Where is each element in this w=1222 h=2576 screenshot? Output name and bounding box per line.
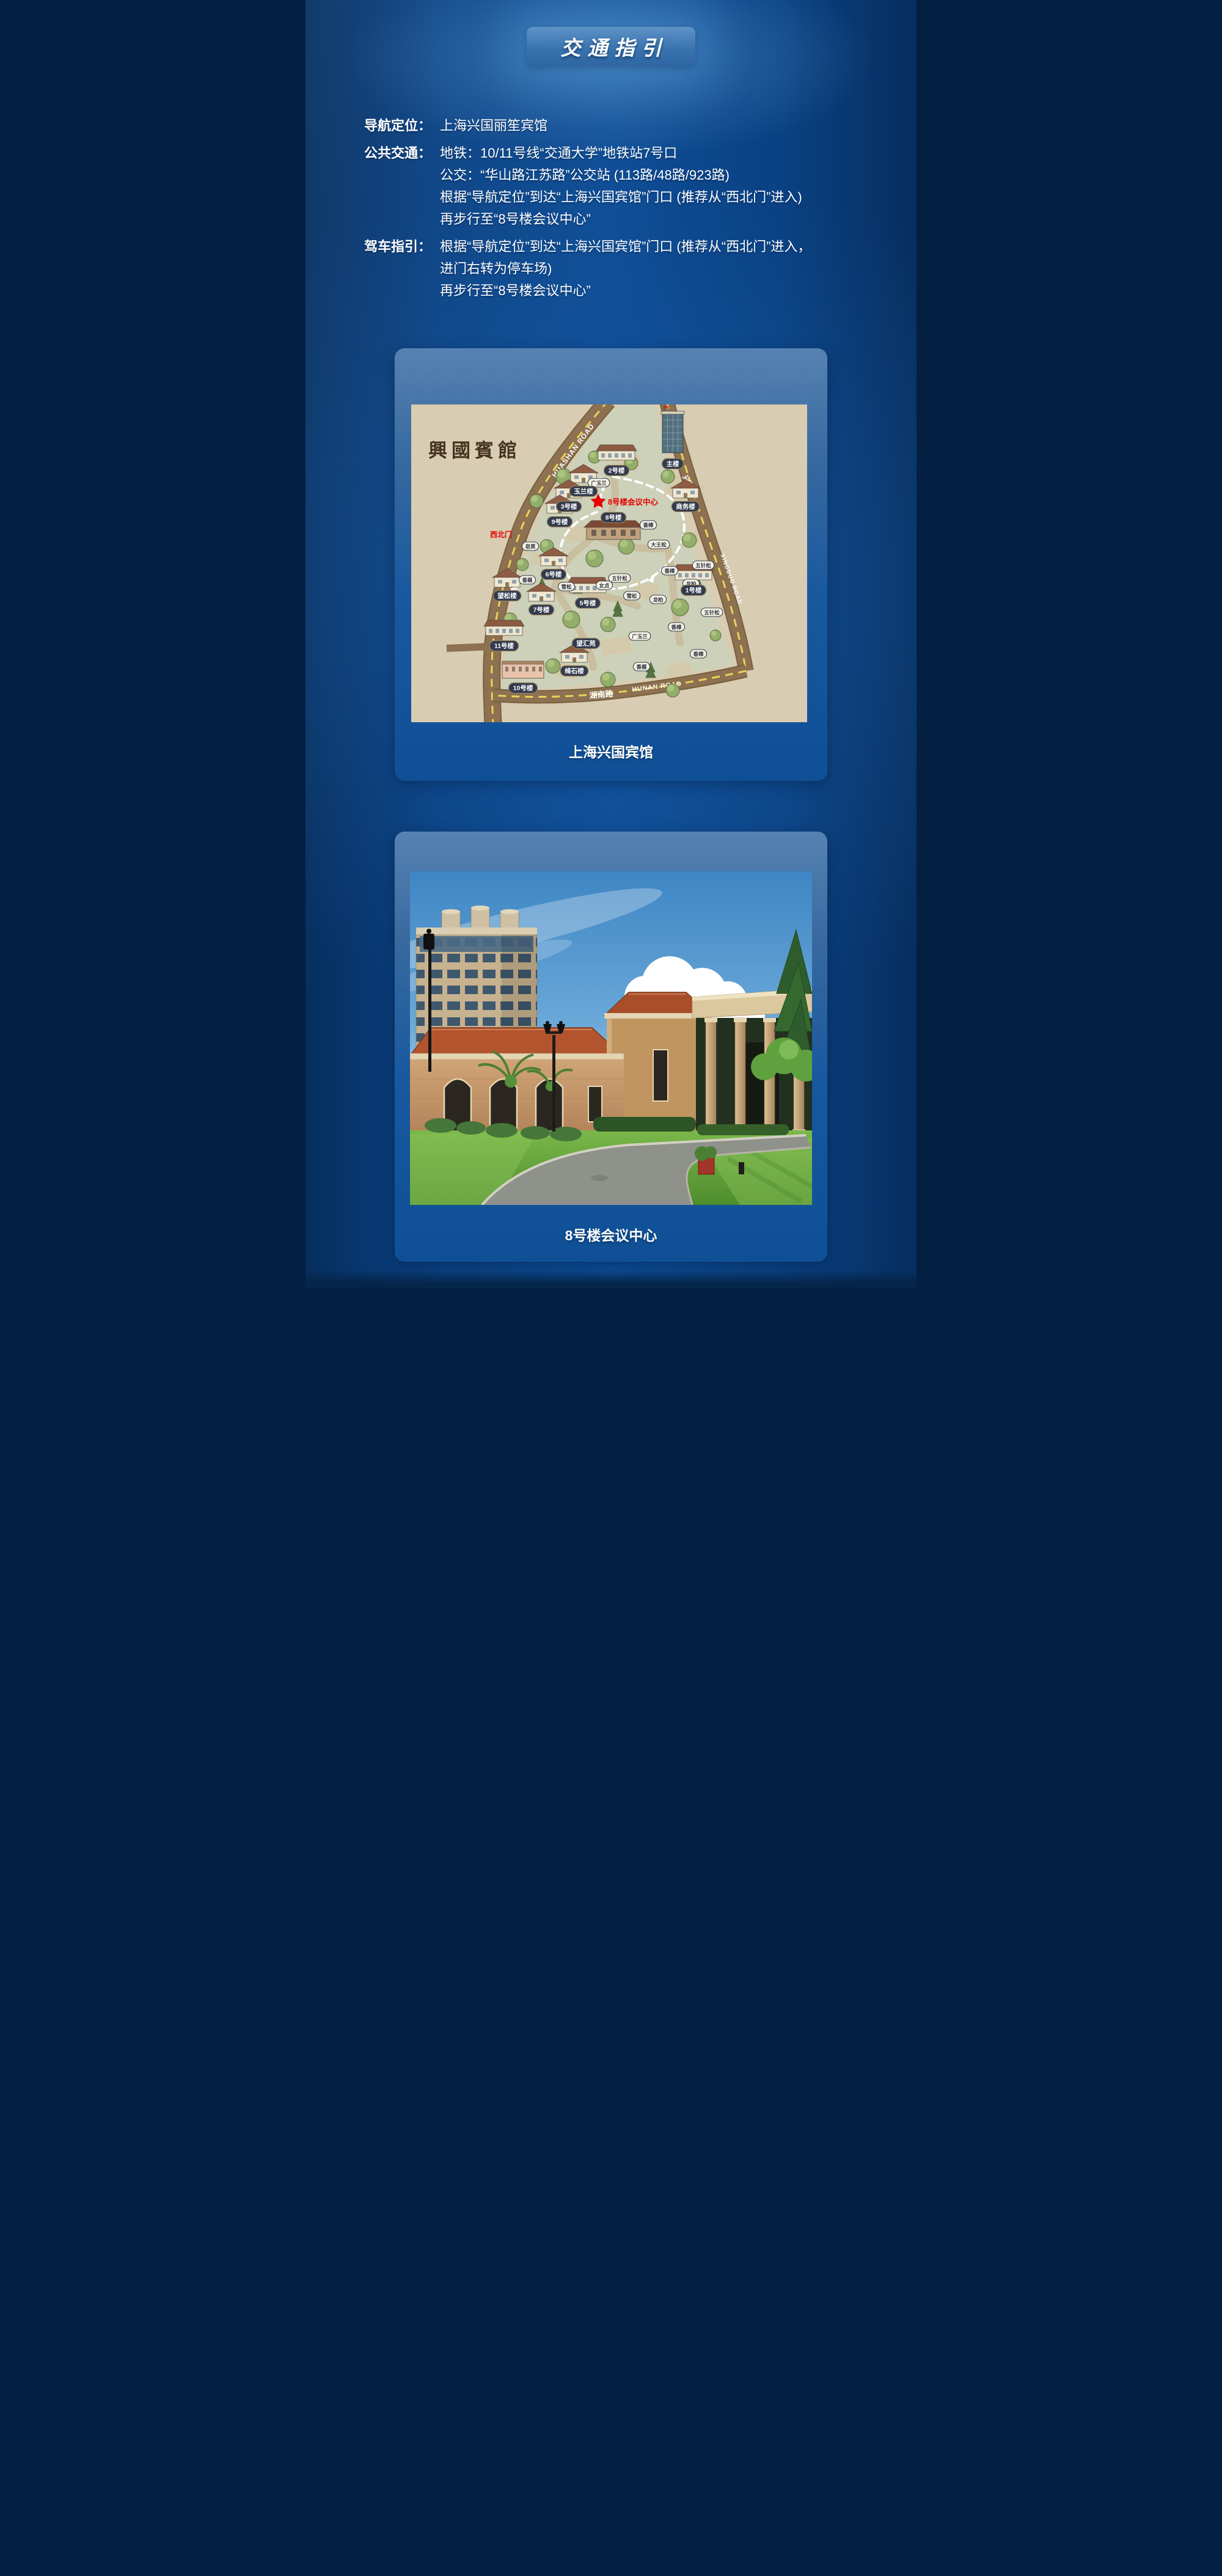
map-tree-label: 香樟 [690,649,707,658]
svg-text:5号楼: 5号楼 [580,599,596,607]
conference-highlight-label: 8号楼会议中心 [608,497,658,507]
info-row-label: 驾车指引： [364,236,440,302]
svg-text:商务楼: 商务楼 [676,503,695,511]
map-building-label: 7号楼 [529,605,554,615]
map-title-calligraphy: 興國賓館 [428,440,521,462]
svg-text:香樟: 香樟 [670,624,682,631]
svg-text:五针松: 五针松 [612,576,627,582]
map-tree-label: 香榧 [634,662,650,671]
svg-text:广玉兰: 广玉兰 [632,634,648,640]
svg-text:皂荚: 皂荚 [525,544,536,550]
hotel-map-illustration: HUASHAN ROAD 华山路 兴国路 XINGGUO ROAD 湖南路 HU… [411,404,807,722]
map-building-label: 望松楼 [493,591,521,601]
map-caption: 上海兴国宾馆 [395,741,827,761]
map-building-label: 10号楼 [508,683,537,693]
page-title-banner: 交通指引 [527,27,695,66]
road-side-stub [447,646,494,648]
traffic-guide-page: 交通指引 导航定位：上海兴国丽笙宾馆公共交通：地铁：10/11号线“交通大学”地… [305,0,916,1288]
info-row-label: 公共交通： [364,142,440,230]
svg-text:女贞: 女贞 [599,583,610,589]
info-line: 地铁：10/11号线“交通大学”地铁站7号口 [440,142,896,164]
map-building-label: 5号楼 [575,598,600,609]
map-tree-label: 皂荚 [522,542,539,551]
footer-strip [305,1270,916,1288]
info-line: 根据“导航定位”到达“上海兴国宾馆”门口 (推荐从“西北门”进入， [440,236,896,258]
svg-text:7号楼: 7号楼 [533,606,550,614]
svg-text:香樟: 香樟 [692,651,704,657]
map-tree-label: 广玉兰 [629,632,651,640]
map-tree-label: 女贞 [596,581,613,590]
svg-text:广玉兰: 广玉兰 [591,480,607,486]
svg-text:望汇苑: 望汇苑 [576,640,596,648]
svg-text:雪松: 雪松 [626,593,637,599]
conference-photo [410,871,812,1205]
svg-text:9号楼: 9号楼 [552,518,568,526]
info-row-label: 导航定位： [364,115,440,137]
info-row-lines: 上海兴国丽笙宾馆 [440,115,896,137]
map-building-label: 绮石楼 [560,666,588,676]
info-row: 导航定位：上海兴国丽笙宾馆 [364,115,896,137]
svg-text:望松楼: 望松楼 [497,592,517,600]
map-building-glyph [596,445,637,460]
info-line: 公交：“华山路江苏路”公交站 (113路/48路/923路) [440,164,896,186]
svg-text:1号楼: 1号楼 [686,587,702,595]
map-tree-label: 雪松 [624,591,640,600]
svg-text:11号楼: 11号楼 [494,642,514,650]
hotel-map-card: HUASHAN ROAD 华山路 兴国路 XINGGUO ROAD 湖南路 HU… [395,348,827,781]
hotel-map-image: HUASHAN ROAD 华山路 兴国路 XINGGUO ROAD 湖南路 HU… [411,404,807,722]
info-line: 进门右转为停车场) [440,258,896,280]
map-building-label: 主楼 [662,459,684,469]
photo-caption: 8号楼会议中心 [395,1224,827,1245]
svg-text:香榧: 香榧 [635,664,647,670]
svg-text:2号楼: 2号楼 [609,467,625,475]
svg-text:6号楼: 6号楼 [546,571,562,579]
bollard [739,1162,744,1174]
info-line: 再步行至“8号楼会议中心” [440,208,896,230]
map-building-label: 玉兰楼 [569,486,598,497]
map-tree-label: 五针松 [701,608,723,617]
page-title: 交通指引 [554,32,668,61]
map-building-glyph [502,661,544,678]
map-building-glyph [584,521,643,540]
map-building-label: 商务楼 [671,502,700,512]
info-line: 上海兴国丽笙宾馆 [440,115,896,137]
map-tree-label: 香榧 [519,576,536,584]
svg-text:香榧: 香榧 [521,577,533,584]
svg-text:10号楼: 10号楼 [513,684,533,692]
svg-text:五针松: 五针松 [704,610,720,616]
info-line: 再步行至“8号楼会议中心” [440,280,896,302]
map-building-label: 2号楼 [604,466,629,476]
svg-text:五针松: 五针松 [695,563,711,569]
map-tree-label: 五针松 [692,561,714,569]
map-tree-label: 龙柏 [650,595,667,604]
svg-text:香樟: 香樟 [664,568,675,574]
info-row: 公共交通：地铁：10/11号线“交通大学”地铁站7号口公交：“华山路江苏路”公交… [364,142,896,230]
conference-photo-illustration [410,871,812,1205]
svg-text:主楼: 主楼 [667,460,680,468]
map-building-glyph [661,405,684,453]
map-tree-label: 雪松 [558,582,575,591]
svg-text:龙柏: 龙柏 [652,597,663,603]
svg-text:香樟: 香樟 [642,522,654,529]
info-row-lines: 地铁：10/11号线“交通大学”地铁站7号口公交：“华山路江苏路”公交站 (11… [440,142,896,230]
map-building-label: 11号楼 [489,641,518,651]
map-building-label: 望汇苑 [572,639,600,649]
map-building-label: 1号楼 [681,585,706,596]
svg-text:雪松: 雪松 [561,584,572,590]
info-line: 根据“导航定位”到达“上海兴国宾馆”门口 (推荐从“西北门”进入) [440,186,896,208]
svg-text:8号楼: 8号楼 [606,514,622,522]
map-tree-label: 香樟 [662,566,678,575]
map-building-label: 3号楼 [556,502,581,512]
map-building-glyph [484,620,524,635]
svg-text:绮石楼: 绮石楼 [565,667,584,675]
map-building-label: 9号楼 [547,517,572,527]
transport-info-block: 导航定位：上海兴国丽笙宾馆公共交通：地铁：10/11号线“交通大学”地铁站7号口… [364,115,896,302]
map-building-label: 6号楼 [541,569,566,580]
map-tree-label: 五针松 [609,574,631,582]
svg-text:大王松: 大王松 [651,542,667,548]
map-tree-label: 香樟 [640,521,657,529]
northwest-gate-label: 西北门 [490,530,512,539]
map-tree-label: 香樟 [668,623,685,631]
info-row: 驾车指引：根据“导航定位”到达“上海兴国宾馆”门口 (推荐从“西北门”进入，进门… [364,236,896,302]
conference-photo-card: 8号楼会议中心 [395,832,827,1262]
map-tree-label: 大王松 [648,540,670,549]
svg-text:玉兰楼: 玉兰楼 [574,488,593,496]
info-row-lines: 根据“导航定位”到达“上海兴国宾馆”门口 (推荐从“西北门”进入，进门右转为停车… [440,236,896,302]
map-building-label: 8号楼 [601,513,626,523]
svg-text:3号楼: 3号楼 [561,503,577,511]
